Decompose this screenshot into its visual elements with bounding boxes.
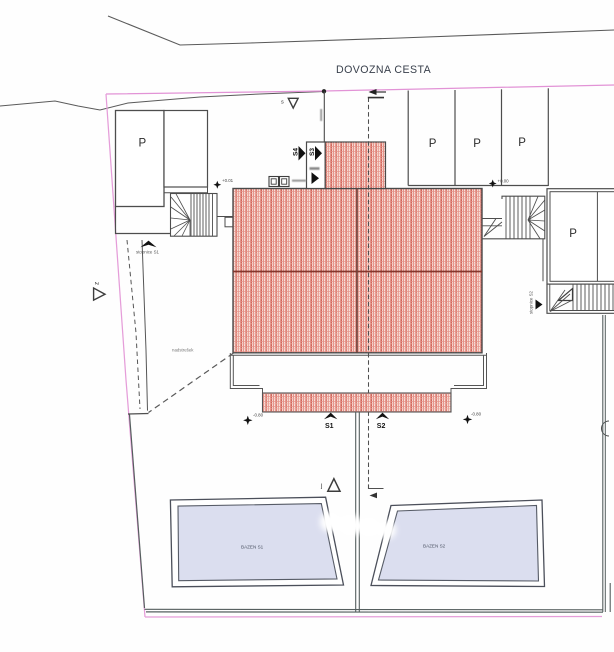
svg-text:P: P bbox=[473, 138, 481, 150]
svg-text:S3: S3 bbox=[309, 148, 316, 156]
svg-text:stopnice S2: stopnice S2 bbox=[529, 290, 534, 314]
svg-text:stopnice S1: stopnice S1 bbox=[136, 250, 160, 255]
svg-text:-0.80: -0.80 bbox=[471, 412, 482, 417]
svg-text:P: P bbox=[569, 228, 577, 240]
svg-text:z: z bbox=[94, 282, 101, 285]
svg-text:P: P bbox=[139, 138, 147, 150]
svg-text:S2: S2 bbox=[377, 423, 386, 430]
svg-text:P: P bbox=[518, 137, 526, 149]
svg-text:j: j bbox=[320, 483, 322, 490]
svg-text:BAZEN S2: BAZEN S2 bbox=[423, 544, 446, 549]
svg-text:-0.80: -0.80 bbox=[253, 413, 264, 418]
svg-text:S1: S1 bbox=[325, 423, 334, 430]
svg-text:DOVOZNA CESTA: DOVOZNA CESTA bbox=[336, 64, 432, 76]
svg-text:P: P bbox=[429, 138, 437, 150]
svg-text:BAZEN S1: BAZEN S1 bbox=[241, 545, 264, 550]
svg-text:S4: S4 bbox=[293, 148, 300, 156]
svg-text:nadstrešek: nadstrešek bbox=[172, 348, 194, 353]
svg-text:s: s bbox=[281, 100, 284, 106]
svg-text:+0.01: +0.01 bbox=[222, 178, 234, 183]
svg-text:+0.00: +0.00 bbox=[498, 179, 510, 184]
